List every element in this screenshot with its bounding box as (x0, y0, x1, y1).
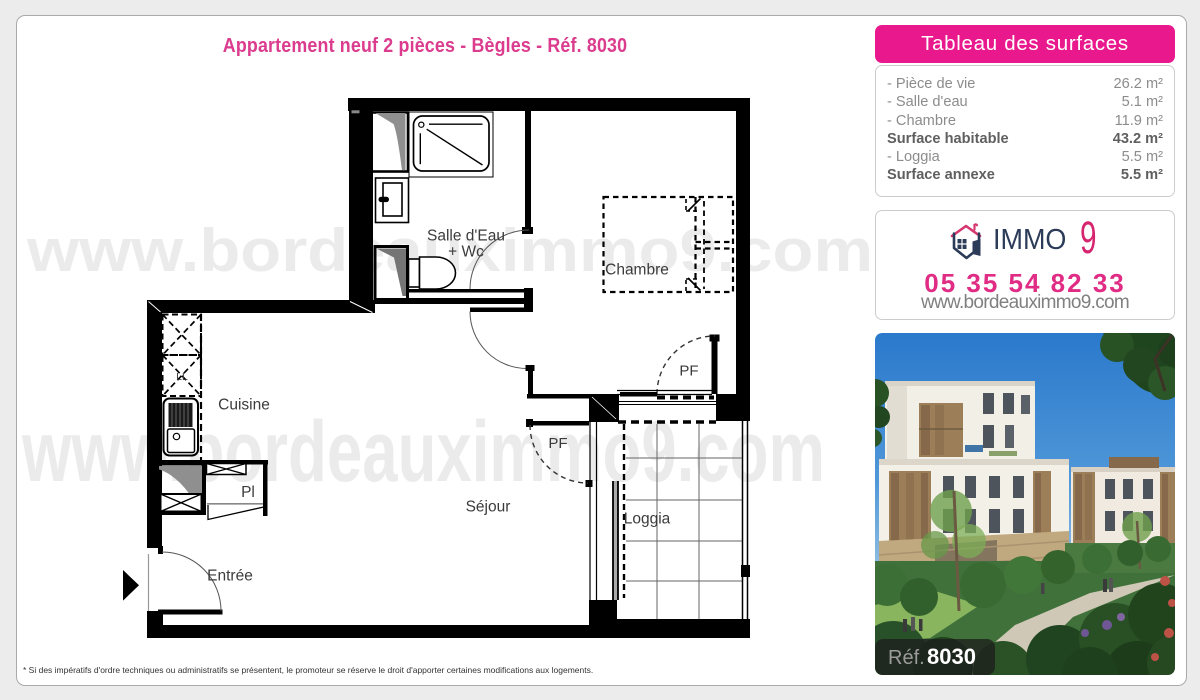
svg-text:Chambre: Chambre (605, 262, 669, 279)
svg-text:Réf.: Réf. (888, 647, 925, 669)
svg-text:+ Wc: + Wc (448, 244, 484, 261)
svg-text:PF: PF (548, 435, 567, 452)
svg-text:PF: PF (679, 363, 698, 380)
svg-text:LL: LL (176, 371, 188, 383)
svg-text:Salle d'Eau: Salle d'Eau (427, 228, 505, 245)
svg-text:Entrée: Entrée (207, 568, 253, 585)
svg-text:Loggia: Loggia (624, 511, 671, 528)
svg-text:Cuisine: Cuisine (218, 397, 270, 414)
svg-text:Pl: Pl (241, 484, 255, 501)
svg-text:Séjour: Séjour (466, 499, 511, 516)
svg-text:8030: 8030 (927, 644, 976, 669)
